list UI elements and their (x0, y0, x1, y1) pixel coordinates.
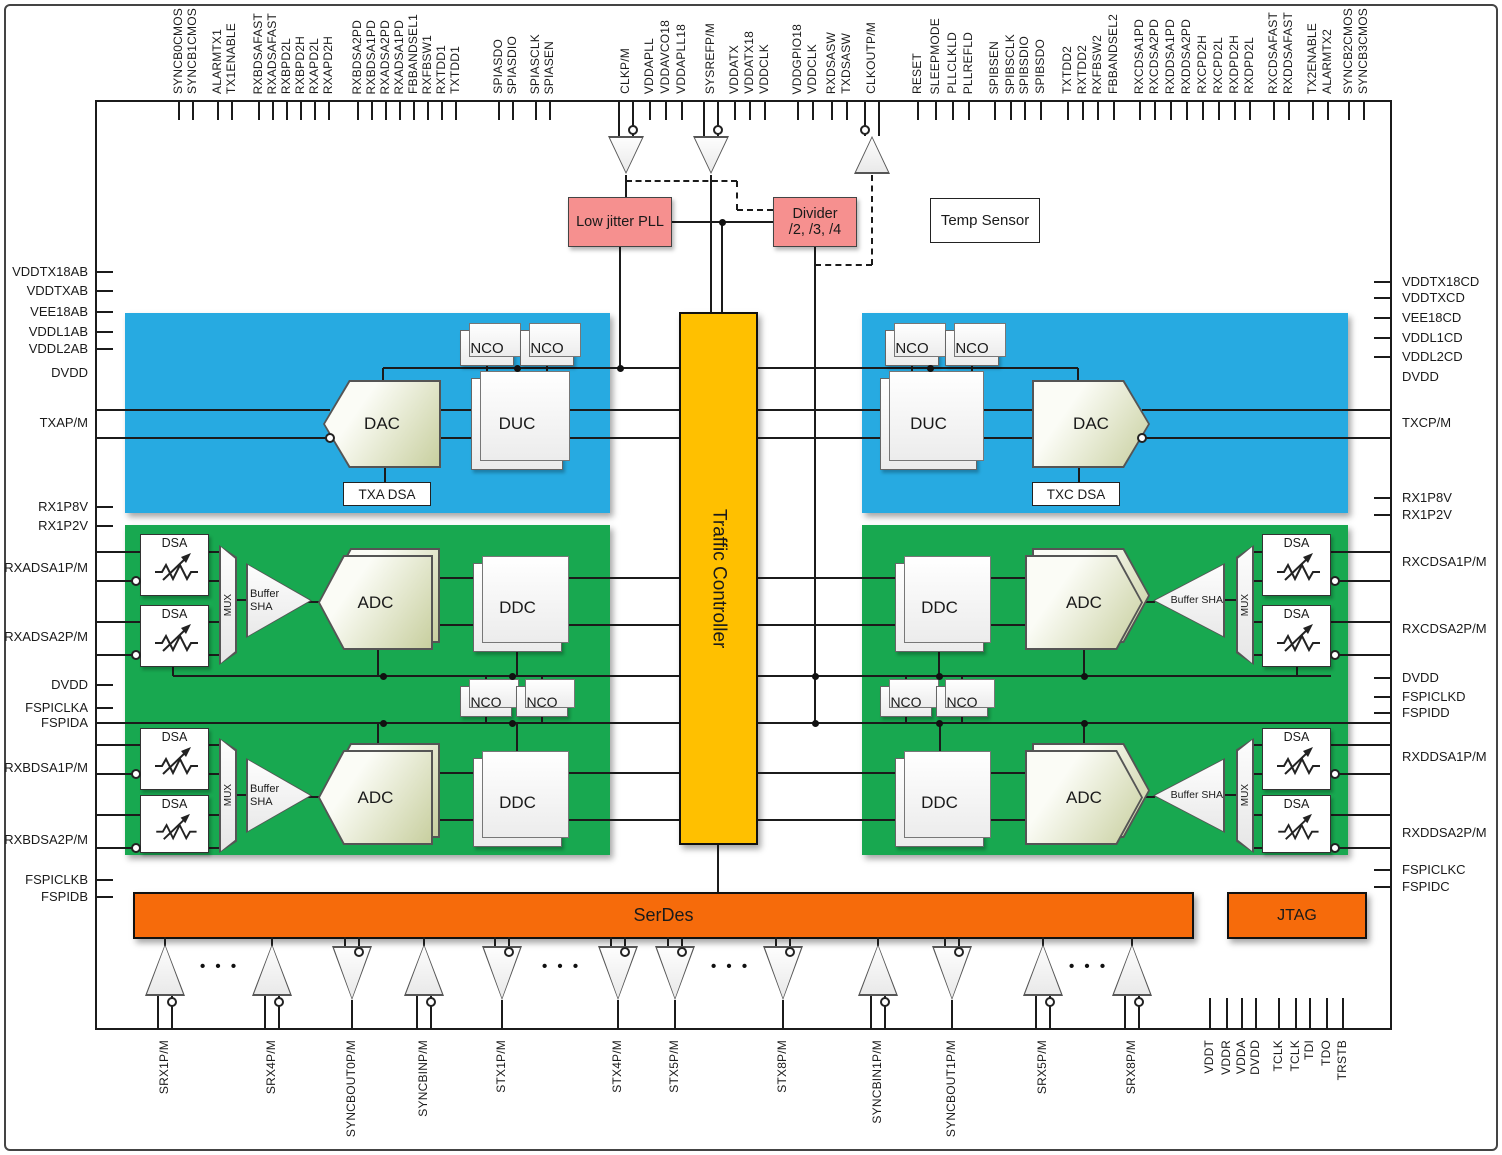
pin-label-right: RXDDSA1P/M (1402, 749, 1487, 764)
wire (1374, 712, 1392, 714)
low-jitter-pll-block: Low jitter PLL (568, 197, 672, 247)
junction-dot (1081, 720, 1088, 727)
wire (1254, 814, 1262, 816)
inversion-bubble (880, 997, 890, 1007)
inversion-bubble (1045, 997, 1055, 1007)
pin-label-top: TXDSASW (839, 33, 853, 94)
wire (1327, 100, 1329, 120)
pin-label-top: ALARMTX1 (210, 29, 224, 94)
wire (1225, 794, 1236, 796)
wire (541, 717, 543, 723)
wire (1326, 998, 1328, 1030)
pin-label-bottom: STX1P/M (494, 1040, 508, 1093)
dsa-label: DSA (162, 731, 188, 745)
pin-label-right: TXCP/M (1402, 415, 1451, 430)
wire (95, 331, 113, 333)
inversion-bubble (1137, 433, 1147, 443)
wire (1254, 621, 1262, 623)
wire (952, 100, 954, 120)
pin-label-right: VDDL2CD (1402, 349, 1463, 364)
wire (95, 707, 113, 709)
wire (1254, 551, 1262, 553)
wire (1254, 744, 1262, 746)
pin-label-top: RXDDSA1PD (1163, 19, 1177, 94)
wire (178, 100, 180, 120)
wire (95, 896, 113, 898)
pin-label-bottom: SRX1P/M (157, 1040, 171, 1094)
wire (625, 175, 627, 197)
wire (977, 409, 1032, 411)
wire (95, 621, 140, 623)
wire (1374, 297, 1392, 299)
ddc-label: DDC (499, 598, 536, 618)
pin-label-left: DVDD (51, 677, 88, 692)
pin-label-top: TXTDD2 (1060, 46, 1074, 94)
pin-label-bottom: SYNCBOUT1P/M (944, 1040, 958, 1137)
buffer-sha-label: Buffer SHA (246, 783, 290, 808)
pin-label-bottom: SYNCBINP/M (416, 1040, 430, 1117)
wire (1295, 998, 1297, 1030)
pin-label-right: DVDD (1402, 369, 1439, 384)
wire (286, 100, 288, 120)
wire (1288, 100, 1290, 120)
pin-label-top: SPIBSCLK (1003, 34, 1017, 94)
pin-label-top: CLKOUTP/M (864, 22, 878, 94)
temp-sensor-block: Temp Sensor (930, 198, 1040, 243)
pin-label-right: DVDD (1402, 670, 1439, 685)
dsa-block-dashed: DSA (1262, 795, 1331, 853)
inversion-bubble (167, 997, 177, 1007)
inversion-bubble (713, 125, 723, 135)
inversion-bubble (620, 947, 630, 957)
wire (1241, 998, 1243, 1030)
wire (1142, 437, 1392, 439)
wire (994, 100, 996, 120)
wire (563, 437, 679, 439)
pin-label-left: VDDTX18AB (12, 264, 88, 279)
variable-attenuator-icon (1274, 551, 1320, 583)
pin-label-bottom: SYNCBOUT0P/M (344, 1040, 358, 1137)
pin-label-top: RXTDD2 (1075, 45, 1089, 94)
mux-label: MUX (223, 784, 234, 806)
pin-label-top: FBBANDSEL2 (1106, 14, 1120, 94)
pin-label-left: VDDL2AB (29, 341, 88, 356)
wire (1374, 497, 1392, 499)
inversion-bubble (354, 947, 364, 957)
pin-label-top: RXDPD2H (1227, 35, 1241, 94)
pin-label-right: VDDTXCD (1402, 290, 1465, 305)
wire (1374, 514, 1392, 516)
wire (1331, 551, 1392, 553)
dac-label: DAC (1073, 414, 1109, 434)
ellipsis-dots: • • • (542, 958, 581, 975)
wire (371, 100, 373, 120)
wire (300, 100, 302, 120)
pin-label-left: VEE18AB (30, 304, 88, 319)
wire (441, 100, 443, 120)
wire (758, 409, 880, 411)
wire (1097, 100, 1099, 120)
wire (399, 100, 401, 120)
pin-label-bottom: DVDD (1248, 1040, 1262, 1075)
nco-block: NCO (945, 330, 999, 366)
wire (1139, 100, 1141, 120)
wire (173, 675, 679, 677)
wire (209, 744, 219, 746)
wire (1374, 337, 1392, 339)
junction-dot (812, 673, 819, 680)
pin-label-bottom: TCLK (1271, 1040, 1285, 1071)
wire (385, 100, 387, 120)
wire (1331, 744, 1392, 746)
txa-dsa-block: TXA DSA (343, 482, 431, 506)
wire (328, 100, 330, 120)
wire (649, 100, 651, 120)
pin-label-top: RXCPD2L (1211, 37, 1225, 94)
wire (1225, 599, 1236, 601)
wire (815, 264, 872, 266)
inversion-bubble (504, 947, 514, 957)
inversion-bubble (954, 947, 964, 957)
wire (951, 1000, 953, 1029)
mux-label: MUX (1240, 784, 1251, 806)
wire (485, 717, 487, 723)
wire (917, 100, 919, 120)
nco-block: NCO (460, 330, 514, 366)
inversion-bubble (131, 843, 141, 853)
wire (1342, 998, 1344, 1030)
wire (563, 409, 679, 411)
pin-label-top: VDDCLK (805, 44, 819, 94)
pin-label-bottom: TDI (1302, 1040, 1316, 1060)
pin-label-top: RXAPD2L (307, 38, 321, 94)
pin-label-top: TX2ENABLE (1305, 23, 1319, 94)
wire (192, 100, 194, 120)
mux-block: MUX (1236, 738, 1254, 853)
wire (562, 624, 679, 626)
wire (1067, 100, 1069, 120)
nco-label: NCO (470, 694, 501, 710)
wire (737, 209, 773, 211)
wire (758, 675, 1331, 677)
nco-block: NCO (460, 686, 512, 717)
wire (870, 996, 872, 1029)
wire (314, 100, 316, 120)
pin-label-left: RXBDSA2P/M (4, 832, 88, 847)
ellipsis-dots: • • • (711, 958, 750, 975)
wire (1124, 996, 1126, 1029)
wire (831, 100, 833, 120)
pin-label-top: RESET (910, 53, 924, 94)
wire (209, 551, 219, 553)
dsa-block: DSA (140, 534, 209, 596)
wire (758, 577, 895, 579)
pin-label-top: SPIASEN (542, 41, 556, 94)
ellipsis-dots: • • • (1069, 958, 1108, 975)
inversion-bubble (628, 125, 638, 135)
wire (758, 819, 895, 821)
wire (237, 794, 246, 796)
wire (758, 772, 895, 774)
wire (1331, 654, 1392, 656)
divider-block: Divider /2, /3, /4 (773, 197, 857, 247)
pin-label-top: RXDSASW (824, 32, 838, 94)
wire (95, 744, 140, 746)
dsa-block: DSA (140, 728, 209, 790)
inversion-bubble (1330, 769, 1340, 779)
wire (95, 437, 330, 439)
wire (95, 348, 113, 350)
wire (1309, 998, 1311, 1030)
wire (383, 367, 679, 369)
wire (209, 814, 219, 816)
wire (617, 1000, 619, 1029)
nco-label: NCO (530, 340, 563, 357)
junction-dot (927, 365, 934, 372)
dsa-block: DSA (1262, 534, 1331, 596)
wire (1363, 100, 1365, 120)
wire (1154, 100, 1156, 120)
pin-label-left: VDDTXAB (27, 283, 88, 298)
pin-label-left: DVDD (51, 365, 88, 380)
pin-label-top: RXCDSA1PD (1132, 19, 1146, 94)
pin-label-left: TXAP/M (40, 415, 88, 430)
wire (209, 773, 219, 775)
wire (95, 879, 113, 881)
pin-label-top: RXADSAFAST (265, 13, 279, 94)
ddc-label: DDC (499, 793, 536, 813)
wire (264, 996, 266, 1029)
variable-attenuator-icon (152, 622, 198, 654)
nco-label: NCO (526, 694, 557, 710)
wire (1331, 773, 1392, 775)
txc-dsa-block: TXC DSA (1032, 482, 1120, 506)
wire (626, 180, 737, 182)
traffic-controller-label: Traffic Controller (708, 509, 730, 648)
nco-label: NCO (890, 694, 921, 710)
jtag-label: JTAG (1277, 907, 1317, 925)
junction-dot (812, 720, 819, 727)
nco-label: NCO (955, 340, 988, 357)
dsa-block-dashed: DSA (140, 605, 209, 667)
junction-dot (1081, 673, 1088, 680)
inversion-bubble (131, 650, 141, 660)
pin-label-top: VDDAPLL18 (674, 24, 688, 94)
wire (1040, 100, 1042, 120)
wire (1331, 814, 1392, 816)
duc-label: DUC (910, 414, 947, 434)
wire (961, 717, 963, 723)
pin-label-bottom: SYNCBIN1P/M (870, 1040, 884, 1124)
wire (1170, 100, 1172, 120)
pin-label-top: SPIASCLK (528, 34, 542, 94)
inversion-bubble (1330, 843, 1340, 853)
variable-attenuator-icon (1274, 745, 1320, 777)
wire (416, 996, 418, 1029)
wire (377, 650, 379, 676)
wire (217, 100, 219, 120)
nco-block: NCO (516, 686, 568, 717)
dsa-label: DSA (1284, 798, 1310, 812)
pin-label-left: FSPICLKA (25, 700, 88, 715)
wire (95, 409, 330, 411)
wire (1209, 998, 1211, 1030)
wire (441, 409, 471, 411)
mux-label: MUX (1240, 594, 1251, 616)
ddc-block: DDC (895, 758, 984, 847)
pin-label-left: FSPICLKB (25, 872, 88, 887)
junction-dot (936, 673, 943, 680)
wire (749, 100, 751, 120)
pin-label-right: FSPIDD (1402, 705, 1450, 720)
wire (95, 311, 113, 313)
ellipsis-dots: • • • (200, 958, 239, 975)
txc-dsa-label: TXC DSA (1047, 487, 1106, 502)
pin-label-bottom: VDDT (1202, 1040, 1216, 1073)
pin-label-top: FBBANDSEL1 (406, 14, 420, 94)
pin-label-top: VDDATX18 (742, 31, 756, 94)
wire (535, 100, 537, 120)
wire (1374, 356, 1392, 358)
pin-label-left: RXADSA1P/M (4, 560, 88, 575)
variable-attenuator-icon (152, 812, 198, 842)
wire (782, 1000, 784, 1029)
wire (1374, 677, 1392, 679)
wire (549, 100, 551, 120)
wire (1312, 100, 1314, 120)
wire (1142, 409, 1392, 411)
wire (812, 100, 814, 120)
mux-block: MUX (1236, 545, 1254, 665)
wire (562, 772, 679, 774)
ddc-block: DDC (895, 563, 984, 652)
wire (209, 621, 219, 623)
wire (95, 271, 113, 273)
adc-label: ADC (358, 593, 394, 613)
wire (758, 367, 1078, 369)
pin-label-top: RXADSA2PD (378, 20, 392, 95)
wire (1254, 773, 1262, 775)
nco-label: NCO (895, 340, 928, 357)
pin-label-top: CLKP/M (618, 48, 632, 94)
wire (734, 100, 736, 120)
txa-dsa-label: TXA DSA (358, 487, 415, 502)
dsa-block-dashed: DSA (1262, 605, 1331, 667)
junction-dot (514, 365, 521, 372)
pin-label-top: TX1ENABLE (224, 23, 238, 94)
wire (1374, 696, 1392, 698)
divider-label-1: Divider (792, 206, 837, 222)
inversion-bubble (325, 433, 335, 443)
pin-label-top: SPIASDO (491, 39, 505, 94)
wire (351, 1000, 353, 1029)
inversion-bubble (1134, 997, 1144, 1007)
dsa-block-dashed: DSA (140, 795, 209, 853)
wire (95, 722, 113, 724)
adc-label: ADC (1066, 593, 1102, 613)
dsa-label: DSA (162, 608, 188, 622)
wire (1010, 100, 1012, 120)
nco-block: NCO (880, 686, 932, 717)
pin-label-top: VDDATX (727, 45, 741, 94)
wire (1374, 281, 1392, 283)
variable-attenuator-icon (152, 551, 198, 583)
inversion-bubble (131, 769, 141, 779)
nco-label: NCO (470, 340, 503, 357)
wire (1186, 100, 1188, 120)
wire (382, 368, 384, 382)
pin-label-top: RXDPD2L (1242, 37, 1256, 94)
wire (703, 100, 705, 136)
wire (512, 100, 514, 120)
wire (968, 100, 970, 120)
pin-label-top: RXCDSA2PD (1147, 19, 1161, 94)
inversion-bubble (860, 125, 870, 135)
nco-block: NCO (520, 330, 574, 366)
variable-attenuator-icon (1274, 622, 1320, 654)
duc-label: DUC (499, 414, 536, 434)
pin-label-right: FSPIDC (1402, 879, 1450, 894)
wire (231, 100, 233, 120)
wire (1078, 468, 1080, 482)
duc-block: DUC (471, 378, 563, 470)
wire (814, 265, 816, 723)
wire (935, 100, 937, 120)
wire (209, 847, 219, 849)
wire (1035, 996, 1037, 1029)
pin-label-bottom: TDO (1319, 1040, 1333, 1066)
pin-label-top: RXBDSA1PD (364, 20, 378, 95)
pin-label-bottom: VDDR (1219, 1040, 1233, 1075)
pin-label-top: RXBPD2L (279, 38, 293, 94)
jtag-block: JTAG (1227, 892, 1367, 939)
wire (871, 175, 873, 265)
wire (413, 100, 415, 120)
pin-label-bottom: SRX5P/M (1035, 1040, 1049, 1094)
pin-label-top: RXAPD2H (321, 36, 335, 94)
pin-label-right: RXCDSA2P/M (1402, 621, 1487, 636)
wire (1273, 100, 1275, 120)
wire (95, 525, 113, 527)
pin-label-top: RXDDSA2PD (1179, 19, 1193, 94)
pin-label-top: VDDAPLL (642, 38, 656, 94)
pin-label-bottom: STX5P/M (667, 1040, 681, 1093)
pin-label-top: RXBDSAFAST (251, 13, 265, 94)
wire (498, 100, 500, 120)
inversion-bubble (426, 997, 436, 1007)
wire (1348, 100, 1350, 120)
dac-label: DAC (364, 414, 400, 434)
inversion-bubble (677, 947, 687, 957)
nco-block: NCO (885, 330, 939, 366)
block-diagram: Traffic Controller SerDes JTAG Low jitte… (0, 0, 1502, 1155)
wire (1374, 869, 1392, 871)
pin-label-right: VDDL1CD (1402, 330, 1463, 345)
pin-label-top: PLLREFLD (961, 32, 975, 94)
pll-label: Low jitter PLL (576, 214, 664, 230)
pin-label-top: ALARMTX2 (1320, 29, 1334, 94)
wire (1077, 368, 1079, 382)
wire (95, 814, 140, 816)
nco-block: NCO (936, 686, 988, 717)
pin-label-top: RXTDD1 (434, 45, 448, 94)
wire (95, 290, 113, 292)
wire (1113, 100, 1115, 120)
wire (764, 100, 766, 120)
variable-attenuator-icon (1274, 812, 1320, 842)
pin-label-left: FSPIDA (41, 715, 88, 730)
pin-label-left: RX1P8V (38, 499, 88, 514)
